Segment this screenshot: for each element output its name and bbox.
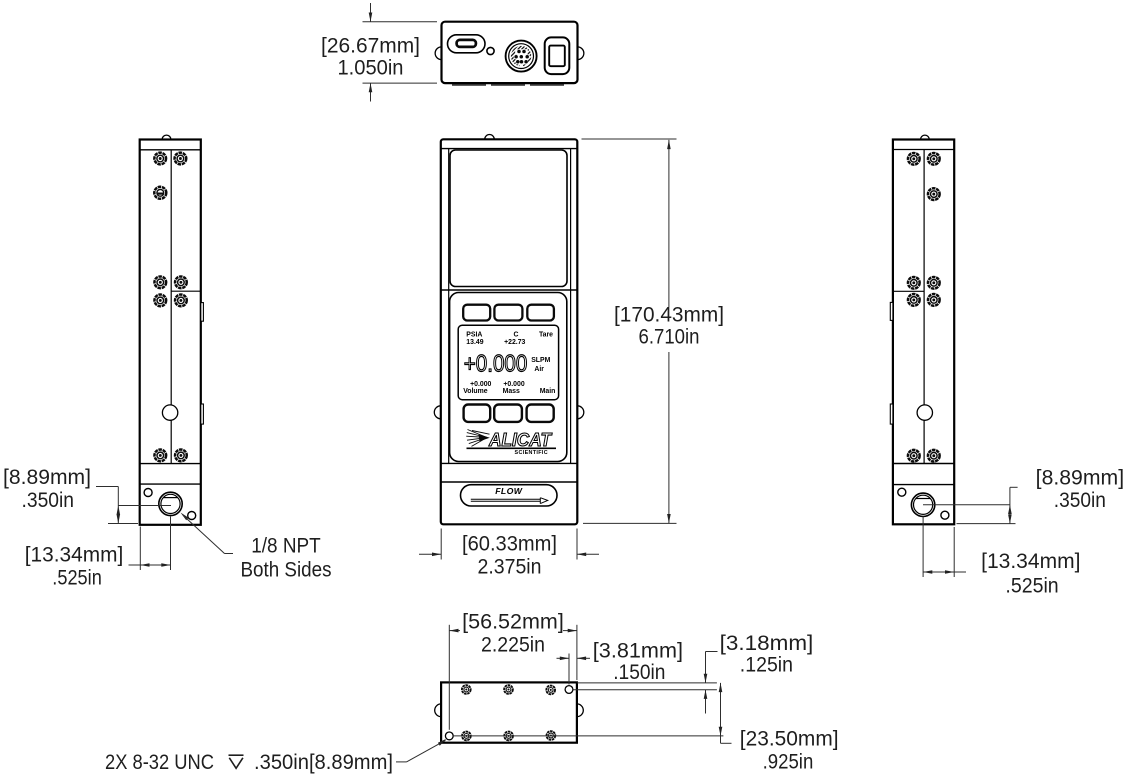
svg-text:.350in: .350in <box>1054 489 1106 512</box>
svg-text:[13.34mm]: [13.34mm] <box>25 544 124 567</box>
svg-text:+22.73: +22.73 <box>504 339 525 346</box>
svg-text:2.225in: 2.225in <box>481 634 545 657</box>
svg-text:Tare: Tare <box>539 331 553 338</box>
svg-text:.525in: .525in <box>52 567 102 590</box>
svg-text:.125in: .125in <box>740 654 793 677</box>
svg-text:SCIENTIFIC: SCIENTIFIC <box>515 450 548 456</box>
svg-text:1.050in: 1.050in <box>338 57 404 80</box>
svg-text:+0.000: +0.000 <box>464 350 528 377</box>
svg-text:[60.33mm]: [60.33mm] <box>462 533 557 556</box>
svg-text:C: C <box>514 331 519 338</box>
svg-text:Volume: Volume <box>463 388 488 395</box>
svg-text:SLPM: SLPM <box>531 357 550 364</box>
svg-text:2.375in: 2.375in <box>478 556 542 579</box>
svg-text:Mass: Mass <box>503 388 520 395</box>
svg-text:[23.50mm]: [23.50mm] <box>740 728 839 751</box>
svg-text:[3.18mm]: [3.18mm] <box>720 632 814 655</box>
svg-text:+0.000: +0.000 <box>503 381 524 388</box>
svg-text:Both Sides: Both Sides <box>241 559 332 582</box>
svg-text:FLOW: FLOW <box>495 486 523 496</box>
svg-text:6.710in: 6.710in <box>639 326 700 349</box>
svg-text:PSIA: PSIA <box>466 331 482 338</box>
svg-text:+0.000: +0.000 <box>470 381 491 388</box>
svg-text:[56.52mm]: [56.52mm] <box>462 611 564 634</box>
svg-text:Main: Main <box>540 388 556 395</box>
svg-text:[8.89mm]: [8.89mm] <box>3 466 91 489</box>
svg-text:[3.81mm]: [3.81mm] <box>593 640 683 663</box>
svg-text:.925in: .925in <box>763 751 814 774</box>
svg-text:[170.43mm]: [170.43mm] <box>614 304 724 327</box>
svg-text:.525in: .525in <box>1005 575 1058 598</box>
svg-text:[8.89mm]: [8.89mm] <box>1036 467 1124 490</box>
svg-text:[26.67mm]: [26.67mm] <box>321 35 420 58</box>
svg-text:1/8 NPT: 1/8 NPT <box>251 535 321 558</box>
svg-text:ALICAT: ALICAT <box>488 430 553 450</box>
svg-text:.150in: .150in <box>613 661 665 684</box>
svg-text:2X 8-32 UNC: 2X 8-32 UNC <box>105 751 214 774</box>
svg-text:.350in[8.89mm]: .350in[8.89mm] <box>254 751 393 774</box>
svg-text:[13.34mm]: [13.34mm] <box>981 550 1080 573</box>
svg-text:Air: Air <box>534 366 544 373</box>
svg-text:13.49: 13.49 <box>466 339 483 346</box>
svg-text:.350in: .350in <box>22 489 75 512</box>
